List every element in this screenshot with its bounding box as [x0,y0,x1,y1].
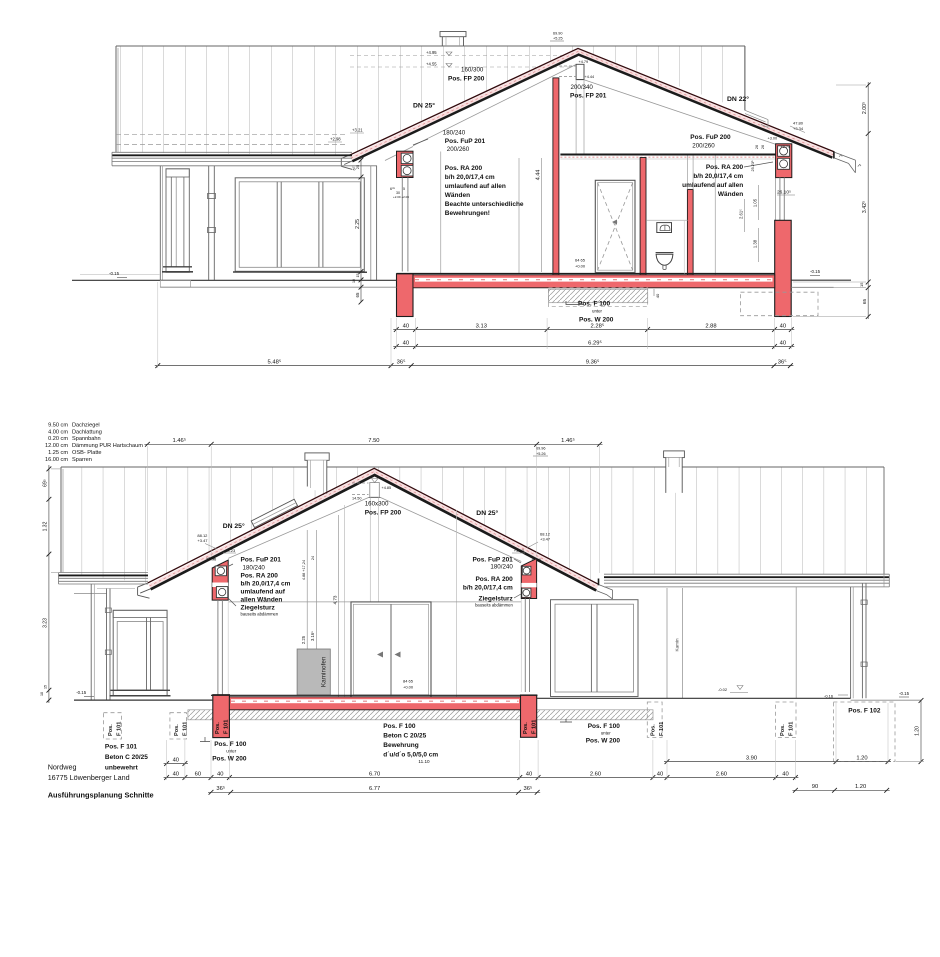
svg-text:7.50: 7.50 [368,438,379,444]
svg-text:+0.00: +0.00 [403,685,414,690]
svg-text:84 65: 84 65 [403,679,414,684]
svg-text:Pos. F 102: Pos. F 102 [848,708,881,715]
svg-text:2.25: 2.25 [355,219,361,229]
svg-text:90: 90 [812,784,818,790]
svg-text:DN 25°: DN 25° [223,522,245,530]
svg-text:Dämmung PUR Hartschaum: Dämmung PUR Hartschaum [72,443,143,449]
svg-text:Pos. F 100: Pos. F 100 [383,723,416,730]
svg-text:40: 40 [403,323,409,329]
svg-text:18: 18 [40,692,44,696]
svg-text:12.00 cm: 12.00 cm [45,443,68,449]
svg-text:26: 26 [761,145,765,149]
svg-text:Pos.: Pos. [651,724,657,736]
svg-text:+2.98: +2.98 [330,137,341,142]
svg-text:60: 60 [195,771,201,777]
svg-text:69.96: 69.96 [536,447,546,451]
svg-text:40: 40 [173,771,179,777]
svg-text:F 101: F 101 [224,720,230,734]
svg-text:6.77: 6.77 [369,786,380,792]
svg-text:+4.95: +4.95 [426,50,437,55]
svg-text:200/260: 200/260 [692,143,715,150]
svg-text:40: 40 [217,771,223,777]
svg-text:3.90: 3.90 [746,755,757,761]
svg-text:F 101: F 101 [117,722,123,736]
svg-text:180/240: 180/240 [490,564,513,571]
svg-text:25.23⁵: 25.23⁵ [751,160,755,172]
svg-text:Kaminofen: Kaminofen [321,656,328,687]
svg-text:9.36⁵: 9.36⁵ [586,358,600,365]
svg-text:DN 25°: DN 25° [413,102,435,110]
svg-text:OSB- Platte: OSB- Platte [72,450,102,456]
svg-text:-0.15: -0.15 [899,691,910,696]
svg-text:5.48⁵: 5.48⁵ [268,358,282,365]
svg-text:Bewehrungen!: Bewehrungen! [445,210,490,217]
svg-text:36⁵: 36⁵ [216,785,225,792]
svg-text:Pos.: Pos. [215,722,221,734]
svg-text:d´u/d´o 5,0/5,0 cm: d´u/d´o 5,0/5,0 cm [383,752,438,759]
svg-text:Dachlattung: Dachlattung [72,429,102,435]
svg-text:Beton C 20/25: Beton C 20/25 [105,754,148,761]
svg-text:40: 40 [526,771,532,777]
svg-text:Pos. RA 200: Pos. RA 200 [706,164,744,171]
svg-text:-0.15: -0.15 [76,690,87,695]
svg-text:6.29⁵: 6.29⁵ [588,339,602,346]
svg-text:Pos.: Pos. [523,722,529,734]
svg-text:+4.85: +4.85 [382,486,392,490]
svg-text:Pos. FuP 201: Pos. FuP 201 [445,138,486,145]
svg-text:+3.22: +3.22 [514,548,525,553]
svg-text:15: 15 [356,274,360,278]
svg-text:40: 40 [780,340,786,346]
svg-text:26: 26 [755,145,759,149]
svg-text:2.00⁵: 2.00⁵ [862,102,868,114]
svg-text:2.61⁵: 2.61⁵ [739,209,744,219]
svg-text:11.10: 11.10 [418,759,430,764]
svg-text:Pos. RA 200: Pos. RA 200 [241,573,279,580]
svg-text:Ziegelsturz: Ziegelsturz [241,605,276,612]
svg-text:unter: unter [601,731,612,736]
svg-text:Pos. W 200: Pos. W 200 [586,738,621,745]
svg-text:1.46⁵: 1.46⁵ [172,437,186,444]
svg-text:180/240: 180/240 [443,130,466,137]
svg-text:-0.15: -0.15 [810,269,821,274]
svg-text:Pos. FuP 201: Pos. FuP 201 [241,557,282,564]
svg-text:+2.74: +2.74 [781,145,791,149]
svg-text:2.60: 2.60 [590,771,601,777]
svg-text:65: 65 [355,292,360,297]
svg-text:9.50 cm: 9.50 cm [48,423,68,429]
svg-text:1.38: 1.38 [753,239,758,248]
svg-text:Pos. F 101: Pos. F 101 [105,744,138,751]
svg-text:40: 40 [657,771,663,777]
svg-text:F 101: F 101 [659,722,665,736]
svg-text:69⁵: 69⁵ [43,479,49,487]
svg-text:F 101: F 101 [532,720,538,734]
svg-text:F 101: F 101 [183,722,189,736]
svg-text:4.73: 4.73 [333,595,338,604]
svg-text:Ausführungsplanung Schnitte: Ausführungsplanung Schnitte [48,791,154,800]
svg-text:36⁵: 36⁵ [397,358,406,365]
svg-text:+4.79: +4.79 [579,60,589,64]
svg-text:Nordweg: Nordweg [48,763,77,772]
svg-text:+3.47: +3.47 [540,537,551,542]
svg-text:6.70: 6.70 [369,771,380,777]
svg-text:b/h 20,0/17,4 cm: b/h 20,0/17,4 cm [693,173,743,180]
svg-text:16.00 cm: 16.00 cm [45,457,68,463]
svg-text:Beachte unterschiedliche: Beachte unterschiedliche [445,201,524,208]
svg-text:+3.34: +3.34 [793,126,804,131]
svg-text:umlaufend auf allen: umlaufend auf allen [682,182,743,189]
svg-text:F 101: F 101 [789,722,795,736]
svg-text:bauseits abdämmen: bauseits abdämmen [241,612,279,617]
svg-text:-0.16: -0.16 [824,694,834,699]
svg-text:1.20: 1.20 [855,784,866,790]
svg-text:36⁵: 36⁵ [778,358,787,365]
svg-text:6¹⁷: 6¹⁷ [352,165,357,171]
svg-text:40: 40 [780,323,786,329]
svg-text:69.90: 69.90 [553,32,563,36]
svg-text:+3.21: +3.21 [352,128,363,133]
svg-text:160/300: 160/300 [461,67,484,74]
svg-text:14.50: 14.50 [352,497,362,501]
svg-text:24: 24 [311,556,315,560]
svg-text:+3.23: +3.23 [225,548,236,553]
svg-text:unter: unter [592,309,603,314]
svg-text:Pos. FP 200: Pos. FP 200 [448,76,485,83]
svg-text:15: 15 [859,282,864,287]
svg-text:unter: unter [226,749,237,754]
svg-text:b/h 20,0/17,4 cm: b/h 20,0/17,4 cm [463,585,513,592]
svg-text:-0.02: -0.02 [718,687,728,692]
svg-text:26.10⁵: 26.10⁵ [777,190,791,196]
svg-text:1.20: 1.20 [915,726,921,736]
svg-text:40: 40 [655,293,660,298]
svg-text:16775 Löwenberger Land: 16775 Löwenberger Land [48,773,130,782]
svg-text:+4.55: +4.55 [426,62,437,67]
svg-text:3.13: 3.13 [476,323,487,329]
svg-text:Wänden: Wänden [718,191,743,198]
svg-text:Pos. FP 201: Pos. FP 201 [570,93,607,100]
svg-text:DN 22°: DN 22° [727,95,749,103]
svg-text:Sparren: Sparren [72,457,92,463]
svg-text:umlaufend auf allen: umlaufend auf allen [445,183,506,190]
svg-text:40: 40 [173,757,179,763]
svg-text:Dachziegel: Dachziegel [72,423,100,429]
svg-text:3.16⁵: 3.16⁵ [310,631,315,641]
svg-text:b/h 20,0/17,4 cm: b/h 20,0/17,4 cm [241,581,291,588]
svg-text:40: 40 [403,340,409,346]
svg-text:40: 40 [782,771,788,777]
svg-text:+2.90: +2.90 [206,557,215,561]
svg-text:+3.47: +3.47 [197,538,208,543]
svg-text:allen Wänden: allen Wänden [241,597,283,604]
svg-text:Ziegelsturz: Ziegelsturz [478,596,513,603]
svg-text:180/240: 180/240 [243,565,266,572]
svg-text:4.88 +17,24: 4.88 +17,24 [302,560,306,580]
svg-text:Pos. FP 200: Pos. FP 200 [365,510,402,517]
svg-text:Pos. F 100: Pos. F 100 [588,723,621,730]
svg-text:65: 65 [862,299,868,305]
svg-text:Spannbahn: Spannbahn [72,436,101,442]
svg-text:200/260: 200/260 [447,146,470,153]
svg-text:6⁰⁵: 6⁰⁵ [390,187,395,191]
svg-text:2.88: 2.88 [705,323,716,329]
svg-text:Pos.: Pos. [780,724,786,736]
svg-text:Kamin: Kamin [675,638,680,651]
svg-text:unbewehrt: unbewehrt [105,765,139,772]
svg-text:36⁵: 36⁵ [523,785,532,792]
svg-text:-0.15: -0.15 [109,271,120,276]
svg-text:b/h 20,0/17,4 cm: b/h 20,0/17,4 cm [445,174,495,181]
svg-text:bauseits abdämmen: bauseits abdämmen [475,603,513,608]
svg-text:Pos. RA 200: Pos. RA 200 [475,576,513,583]
svg-text:Wänden: Wänden [445,192,470,199]
svg-text:3.23: 3.23 [43,618,49,628]
svg-text:+3.00: +3.00 [768,137,778,141]
svg-text:+4.44: +4.44 [585,75,595,79]
svg-text:2.25: 2.25 [301,635,306,644]
svg-text:0.20 cm: 0.20 cm [48,436,68,442]
svg-text:4.00 cm: 4.00 cm [48,429,68,435]
svg-text:10: 10 [352,279,356,283]
svg-text:1.25 cm: 1.25 cm [48,450,68,456]
svg-text:2.60: 2.60 [716,771,727,777]
svg-text:4.44: 4.44 [536,170,542,181]
svg-text:3.42⁵: 3.42⁵ [862,201,868,213]
svg-text:2.28⁵: 2.28⁵ [591,322,605,329]
svg-text:umlaufend auf: umlaufend auf [241,589,286,596]
svg-text:Pos. F 100: Pos. F 100 [214,741,247,748]
svg-text:+2.09 +2.06: +2.09 +2.06 [393,195,409,199]
svg-text:1.05: 1.05 [753,198,758,207]
svg-text:1.46⁵: 1.46⁵ [561,437,575,444]
svg-text:Pos. F 100: Pos. F 100 [578,301,611,308]
svg-text:DN 25°: DN 25° [476,509,498,517]
svg-text:Pos.: Pos. [108,724,114,736]
svg-text:Beton C 20/25: Beton C 20/25 [383,733,426,740]
svg-text:Pos. FuP 200: Pos. FuP 200 [690,134,731,141]
svg-text:47.80: 47.80 [793,121,804,126]
svg-text:Pos. FuP 201: Pos. FuP 201 [472,557,513,564]
svg-text:Pos.: Pos. [174,724,180,736]
svg-text:+0.00: +0.00 [575,264,586,269]
svg-text:200/340: 200/340 [571,84,594,91]
svg-text:Pos. RA 200: Pos. RA 200 [445,165,483,172]
svg-text:64 65: 64 65 [575,258,586,263]
svg-text:15: 15 [44,685,48,689]
svg-text:1.32: 1.32 [43,521,49,531]
svg-text:5: 5 [403,187,405,191]
svg-text:Bewehrung: Bewehrung [383,742,418,749]
svg-text:+5.26: +5.26 [536,452,546,456]
svg-text:160x300: 160x300 [365,501,389,508]
svg-text:+5.25: +5.25 [553,37,563,41]
svg-text:1.20: 1.20 [856,755,867,761]
